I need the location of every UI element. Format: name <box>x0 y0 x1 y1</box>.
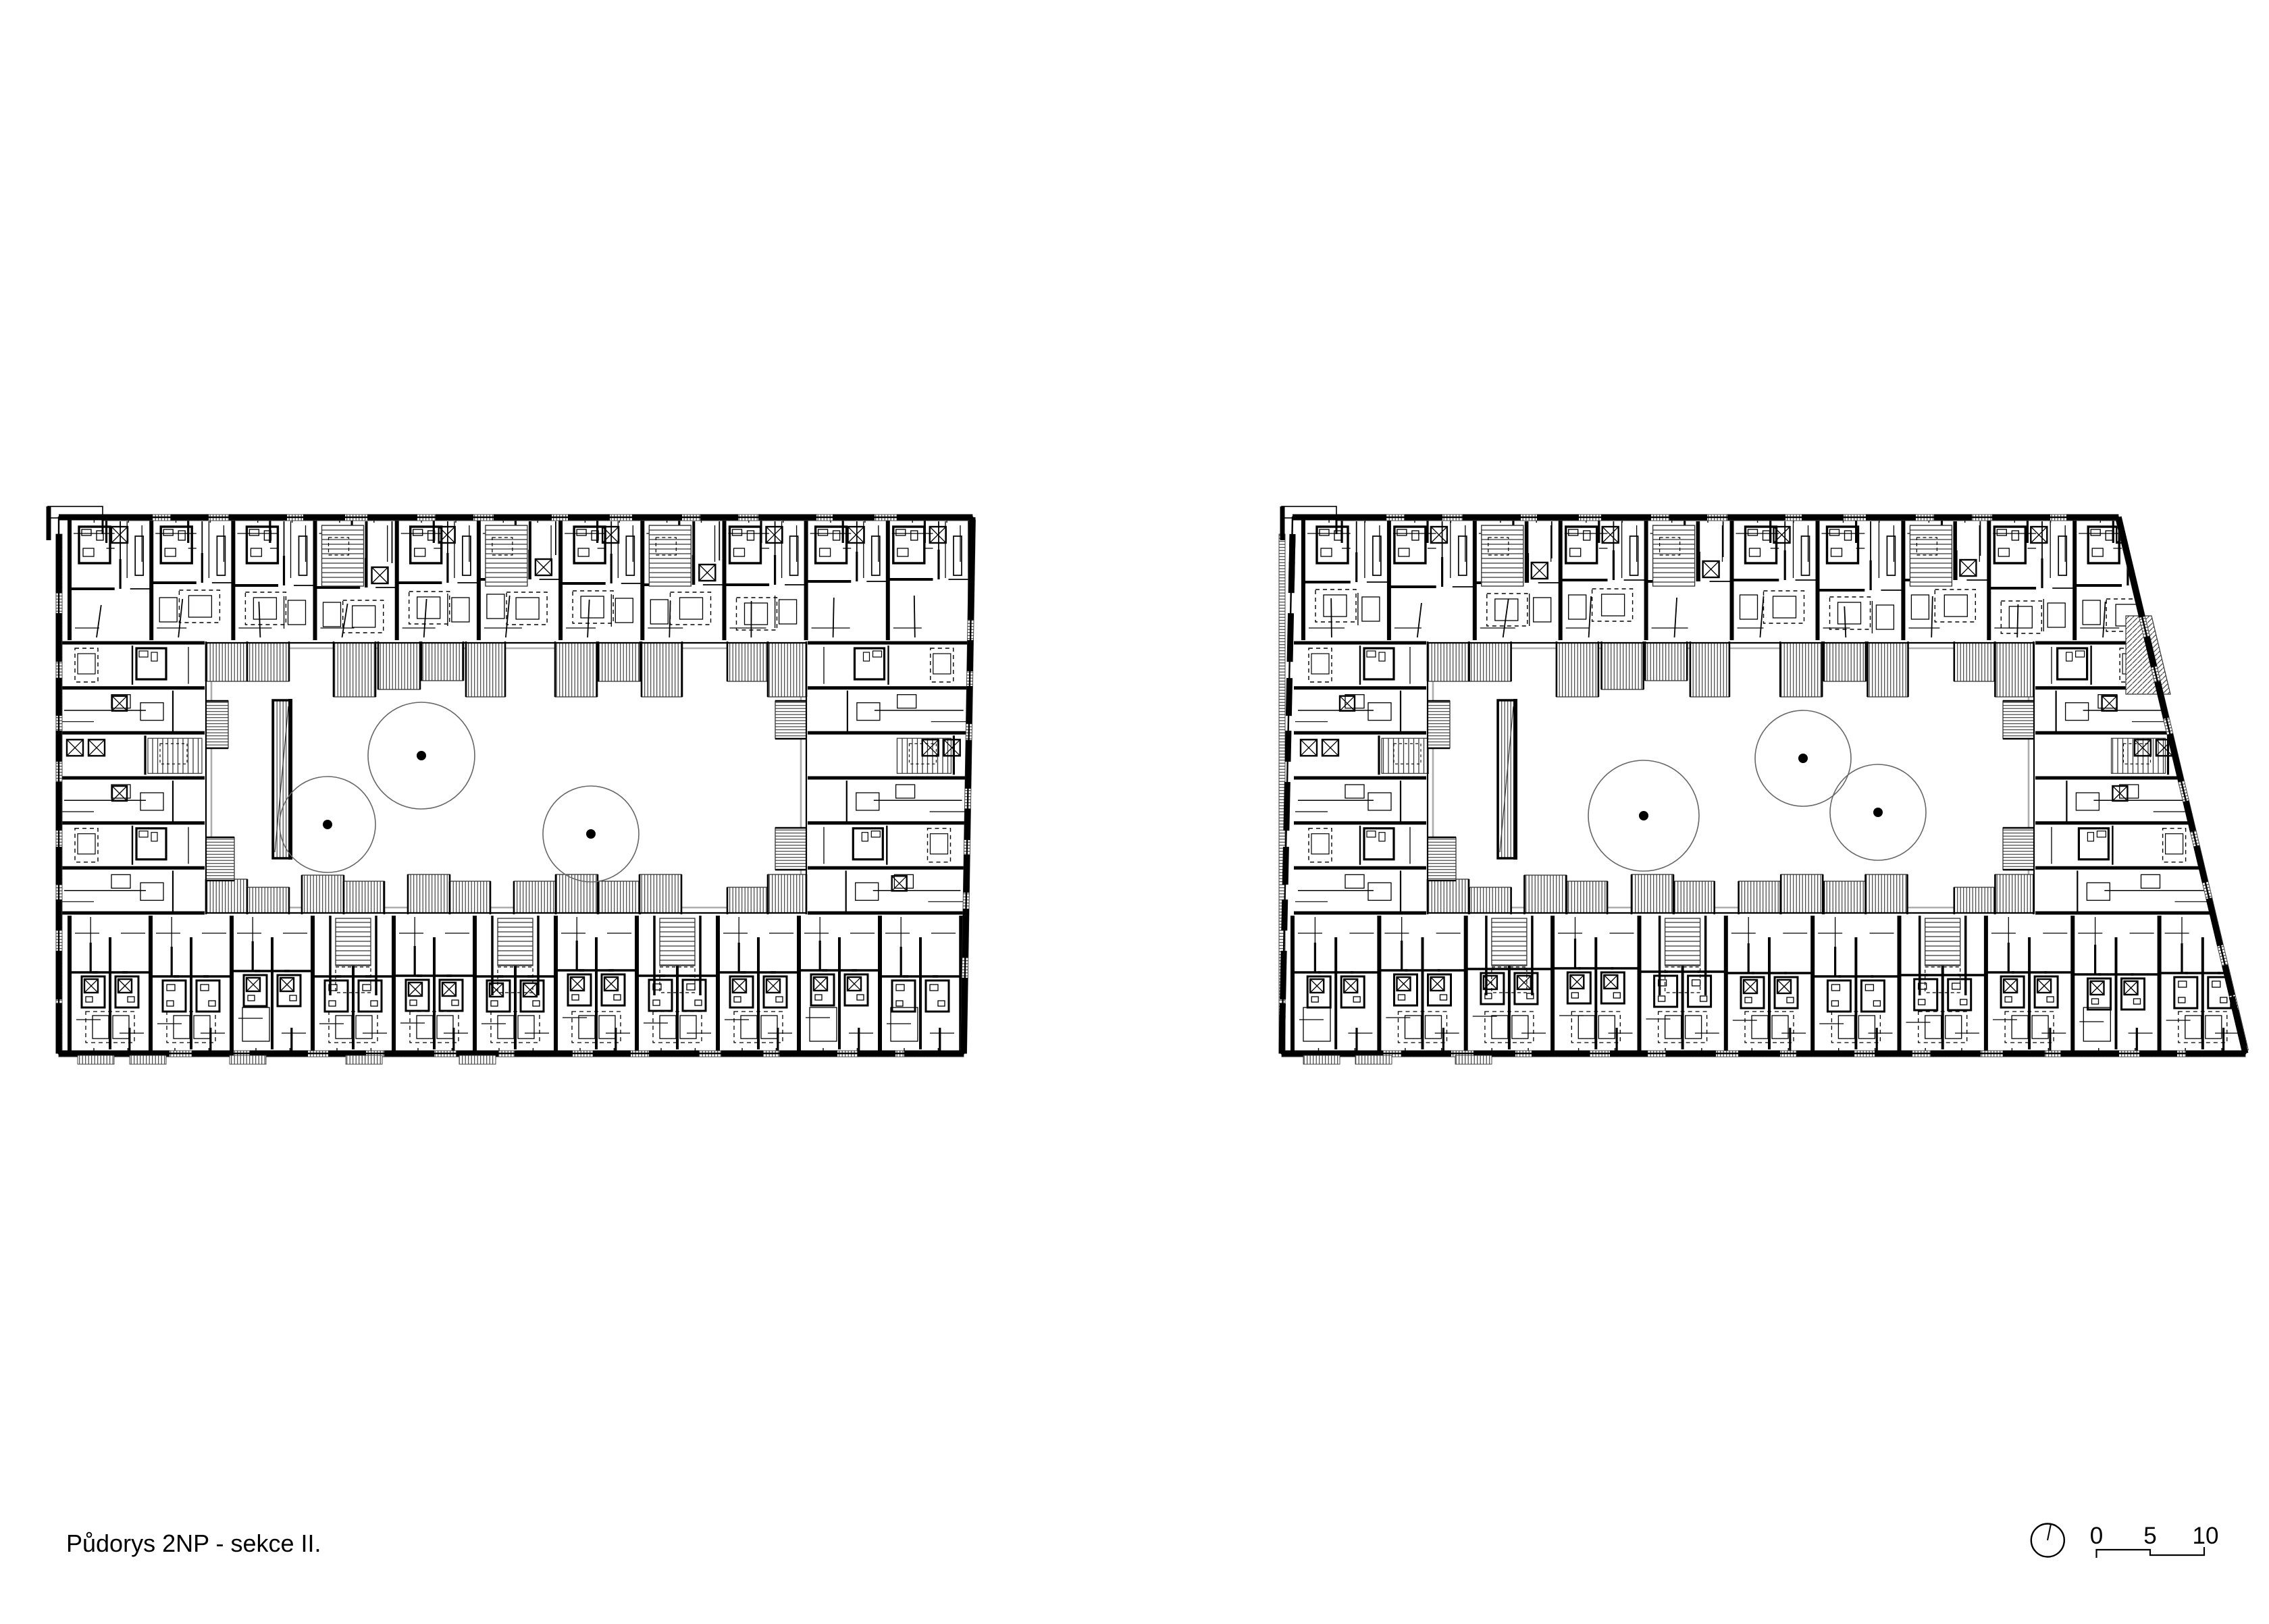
svg-text:10: 10 <box>2193 1523 2219 1549</box>
svg-text:0: 0 <box>2090 1523 2103 1549</box>
svg-text:Půdorys 2NP - sekce II.: Půdorys 2NP - sekce II. <box>66 1529 321 1557</box>
svg-text:5: 5 <box>2143 1523 2156 1549</box>
